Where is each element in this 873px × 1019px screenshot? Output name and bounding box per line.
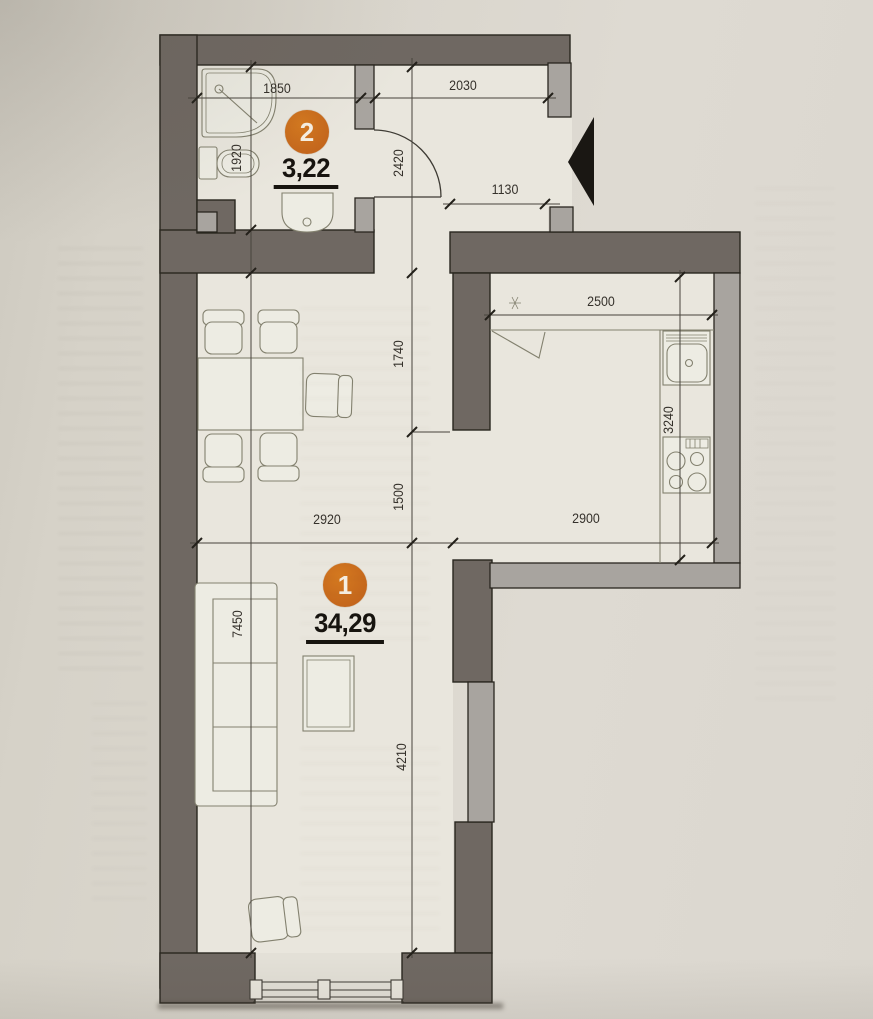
dim-room-depth: 7450 (230, 598, 246, 650)
wall-corner-bottom-right (402, 953, 492, 1003)
floor-plan-photo: 1850 2030 1920 2420 1130 2500 3240 1740 … (0, 0, 873, 1019)
photo-shadow (158, 1003, 503, 1009)
room-area-bathroom: 3,22 (274, 153, 339, 189)
dim-kitchen-opening: 1500 (391, 471, 407, 523)
coffee-table (303, 656, 354, 731)
floor-passage (453, 430, 490, 560)
wall-top (160, 35, 570, 65)
wall-left (160, 35, 197, 988)
wall-entry-jamb-upper (548, 63, 571, 117)
room-area-living: 34,29 (306, 608, 384, 644)
dim-kitchen-counter: 2500 (575, 294, 627, 310)
dim-kitchen-depth: 3240 (661, 394, 677, 446)
dim-room-width: 2920 (301, 512, 353, 528)
shower-cabin (202, 69, 276, 137)
dim-entry-offset: 1130 (479, 182, 531, 198)
wall-kitchen-right (714, 273, 740, 563)
dim-bath-width: 1850 (251, 81, 303, 97)
wall-bath-partition-lower (355, 198, 374, 232)
wall-bath-partition-upper (355, 65, 374, 129)
armchair (248, 894, 302, 943)
wall-kitchen-bottom (490, 563, 740, 588)
wall-corner-bottom-left (160, 953, 255, 1003)
dim-room-lower-depth: 4210 (394, 731, 410, 783)
wall-bathroom-bottom (160, 230, 374, 273)
room-badge-bathroom: 2 (285, 110, 329, 154)
room-badge-living: 1 (323, 563, 367, 607)
dim-hall-width: 2030 (437, 78, 489, 94)
washbasin (282, 193, 333, 232)
dim-bath-depth: 1920 (229, 132, 245, 184)
wall-duct-inset (197, 212, 217, 232)
kitchen-sink (663, 331, 710, 385)
dim-kitchen-wall: 1740 (391, 328, 407, 380)
wall-kitchen-left (453, 273, 490, 430)
floor-plan-drawing (0, 0, 873, 1019)
wall-right-lower (455, 822, 492, 953)
wall-kitchen-top (450, 232, 740, 273)
dim-kitchen-width: 2900 (560, 511, 612, 527)
dim-hall-depth: 2420 (391, 137, 407, 189)
wall-right-window-segment (468, 682, 494, 822)
wall-entry-jamb-lower (550, 207, 573, 232)
wall-right-upper (453, 560, 492, 682)
floor-corridor (373, 230, 453, 275)
dining-chair (305, 373, 352, 418)
